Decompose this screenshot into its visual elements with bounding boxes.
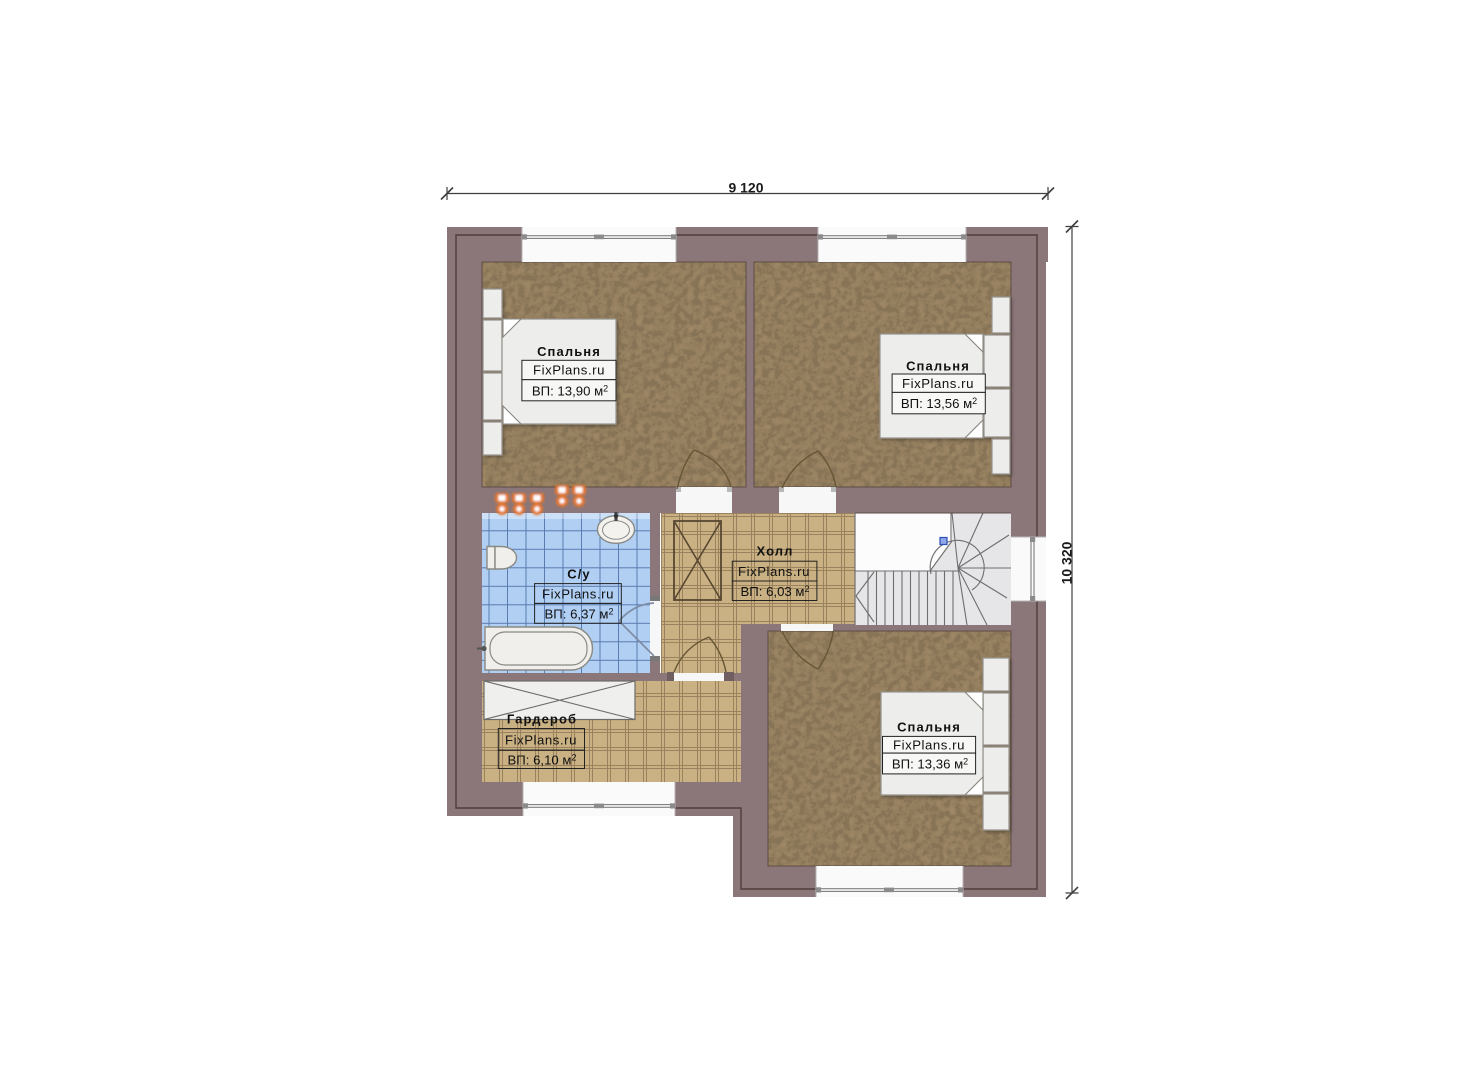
svg-text:FixPlans.ru: FixPlans.ru <box>533 363 605 378</box>
svg-text:С/у: С/у <box>567 567 591 582</box>
svg-text:ВП: 6,10 м2: ВП: 6,10 м2 <box>507 753 576 768</box>
svg-text:Спальня: Спальня <box>906 359 970 374</box>
svg-text:FixPlans.ru: FixPlans.ru <box>542 586 614 601</box>
svg-text:10 320: 10 320 <box>1059 541 1075 584</box>
svg-text:Спальня: Спальня <box>897 720 961 735</box>
svg-text:ВП: 6,03 м2: ВП: 6,03 м2 <box>740 584 809 599</box>
svg-text:FixPlans.ru: FixPlans.ru <box>505 732 577 747</box>
svg-text:ВП: 13,90 м2: ВП: 13,90 м2 <box>532 383 608 398</box>
svg-text:Холл: Холл <box>756 544 793 559</box>
svg-text:ВП: 6,37 м2: ВП: 6,37 м2 <box>544 606 613 621</box>
svg-text:Спальня: Спальня <box>537 344 601 359</box>
svg-text:Гардероб: Гардероб <box>507 712 577 727</box>
svg-text:ВП: 13,36 м2: ВП: 13,36 м2 <box>892 757 968 772</box>
svg-text:FixPlans.ru: FixPlans.ru <box>893 738 965 753</box>
svg-text:9 120: 9 120 <box>728 180 763 196</box>
svg-text:FixPlans.ru: FixPlans.ru <box>738 564 810 579</box>
svg-text:FixPlans.ru: FixPlans.ru <box>902 376 974 391</box>
svg-text:ВП: 13,56 м2: ВП: 13,56 м2 <box>901 396 977 411</box>
